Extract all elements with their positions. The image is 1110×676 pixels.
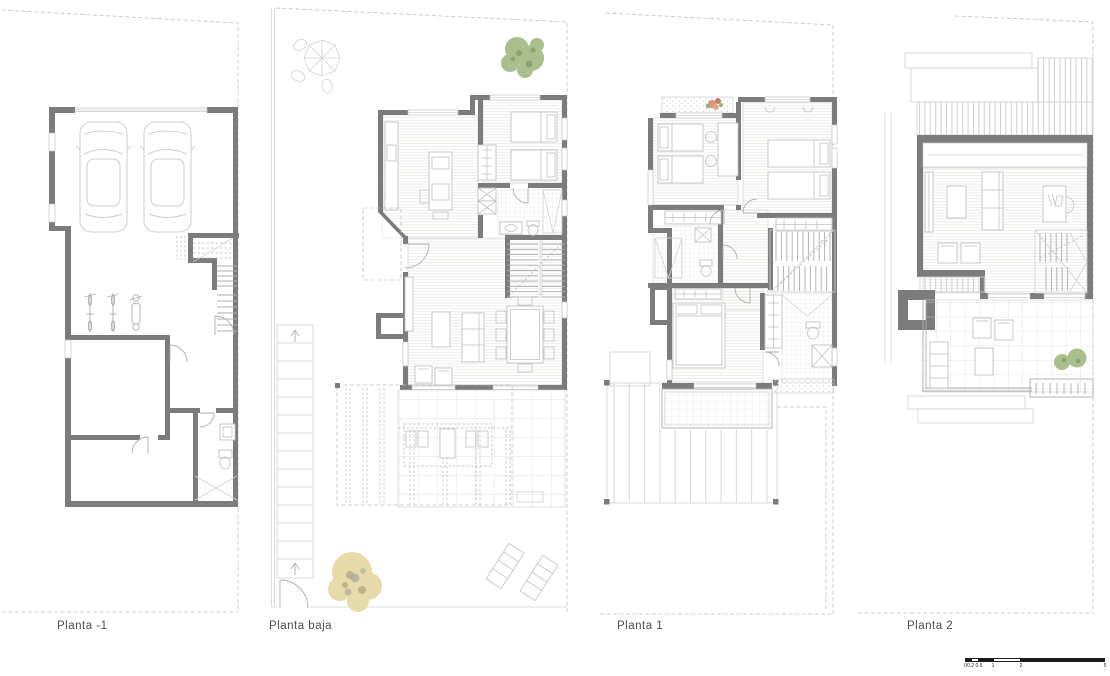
door-arcs [132,345,214,453]
scale-tick: 0.2 [967,663,974,669]
scale-tick: 0.5 [976,663,983,669]
car-icon [76,122,131,232]
garden-steps [277,325,313,578]
floor-plan-planta-minus-1 [2,10,239,612]
tree-icon [501,37,544,78]
gate-door-arc [280,580,308,608]
motorcycle-icon [130,295,142,330]
floor-plan-sheet: Planta -1 Planta baja Planta 1 Planta 2 … [0,0,1110,676]
plot-boundary [2,10,238,612]
scale-tick: 5 [1104,663,1107,669]
scale-tick: 1 [992,663,995,669]
plan-label-planta-baja: Planta baja [269,620,332,632]
bicycle-icon [108,293,119,331]
floor-plan-planta-baja [272,8,568,612]
clerestory-window [923,143,1087,167]
wardrobe-icon [478,145,496,214]
stairs-icon [177,236,237,335]
bicycle-icon [85,293,96,331]
plan-label-planta-minus-1: Planta -1 [57,620,108,632]
scale-bar-segment [1021,658,1105,662]
windows [49,108,207,358]
plan-label-planta-1: Planta 1 [617,620,663,632]
floor-plans-drawing [0,0,1110,676]
plot-edge [272,8,275,607]
tv-sideboard [405,277,413,331]
scale-bar-segment [979,658,993,662]
floor-plan-planta-1 [600,13,837,614]
floor-plan-planta-2 [858,16,1093,613]
scale-bar: 0 0.2 0.5 1 2 5 [965,658,1106,672]
sun-lounger-icon [930,342,948,388]
scale-bar-segment [971,658,979,662]
parasol-table-icon [290,37,340,94]
scale-bar-segment [993,658,1021,662]
sun-lounger-icon [486,543,558,600]
stairs-icon [770,230,835,292]
sofa-icon [982,172,1003,230]
bay-roof-outline [610,352,650,386]
plan-label-planta-2: Planta 2 [907,620,953,632]
cabinet [947,186,966,218]
planter-box [662,97,733,113]
roof-eaves [905,53,1093,135]
gravel-band [772,379,834,393]
armchair-icon [435,368,452,385]
roof-terrace [923,300,1093,397]
bed-icon [673,303,725,368]
coffee-table [432,312,450,347]
eave-band [920,277,985,292]
patio-tiles [398,390,565,507]
bathroom-floor [782,293,832,383]
exterior-steps [908,396,1033,423]
party-wall-lines [885,113,891,363]
car-icon [140,122,195,232]
tree-icon [328,552,382,612]
sofa-icon [462,313,484,362]
bathroom-fixtures [195,424,237,500]
armchair-icon [415,366,432,383]
kitchen-island [429,152,452,210]
scale-tick: 2 [1020,663,1023,669]
